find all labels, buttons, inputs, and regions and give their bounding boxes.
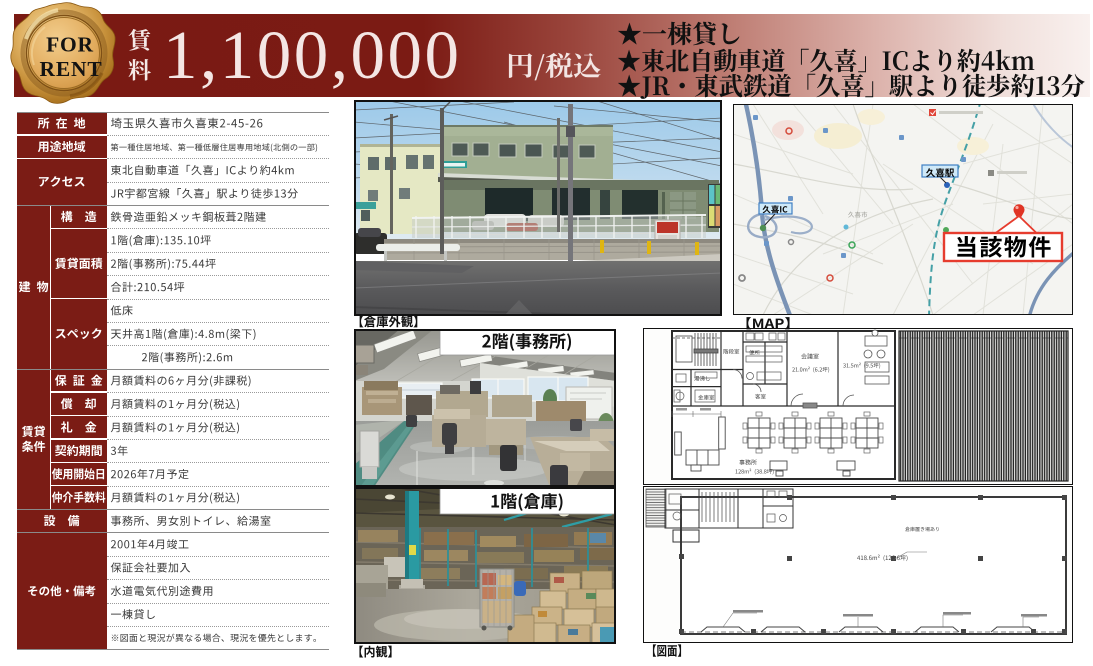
svg-text:RENT: RENT <box>40 57 103 81</box>
svg-text:FOR: FOR <box>46 33 94 57</box>
